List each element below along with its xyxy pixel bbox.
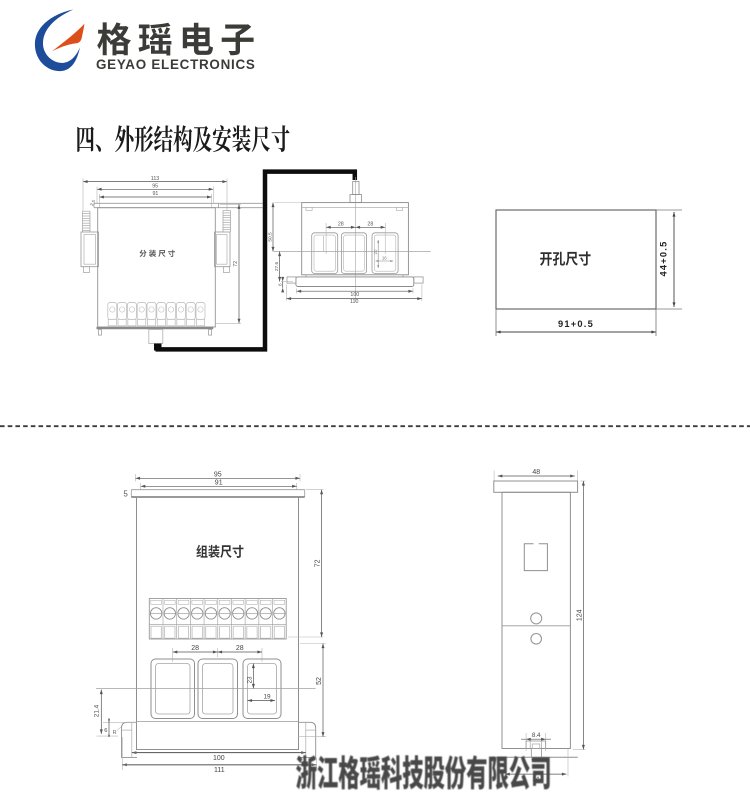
svg-text:95: 95 (152, 184, 158, 190)
svg-text:95: 95 (214, 471, 222, 478)
svg-text:5: 5 (123, 489, 128, 498)
svg-text:6: 6 (104, 728, 107, 734)
svg-text:72: 72 (233, 261, 239, 267)
svg-text:19: 19 (263, 694, 271, 701)
svg-text:GEYAO ELECTRONICS: GEYAO ELECTRONICS (96, 57, 256, 72)
svg-text:27.6: 27.6 (274, 262, 280, 272)
svg-text:3.5: 3.5 (89, 199, 97, 207)
svg-text:16: 16 (382, 256, 387, 261)
svg-text:8.4: 8.4 (532, 732, 541, 739)
svg-text:113: 113 (151, 176, 159, 182)
svg-text:91: 91 (152, 191, 158, 197)
svg-text:91: 91 (215, 480, 223, 487)
svg-text:72: 72 (315, 559, 322, 567)
svg-text:91+0.5: 91+0.5 (558, 319, 594, 329)
svg-text:100: 100 (213, 755, 225, 762)
svg-text:28: 28 (367, 222, 373, 228)
svg-text:23: 23 (247, 676, 254, 684)
svg-text:48: 48 (532, 469, 540, 476)
svg-text:111: 111 (214, 767, 225, 774)
svg-text:28: 28 (236, 645, 244, 652)
svg-text:110: 110 (350, 299, 358, 305)
svg-text:21.4: 21.4 (93, 704, 100, 717)
svg-text:44+0.5: 44+0.5 (659, 241, 669, 277)
svg-text:28: 28 (338, 222, 344, 228)
svg-text:50.5: 50.5 (267, 232, 273, 242)
svg-text:100: 100 (350, 292, 359, 298)
svg-text:28: 28 (191, 645, 199, 652)
svg-text:R: R (113, 730, 117, 736)
svg-text:6: 6 (278, 283, 283, 286)
svg-text:52: 52 (316, 677, 323, 685)
svg-text:124: 124 (576, 609, 583, 621)
